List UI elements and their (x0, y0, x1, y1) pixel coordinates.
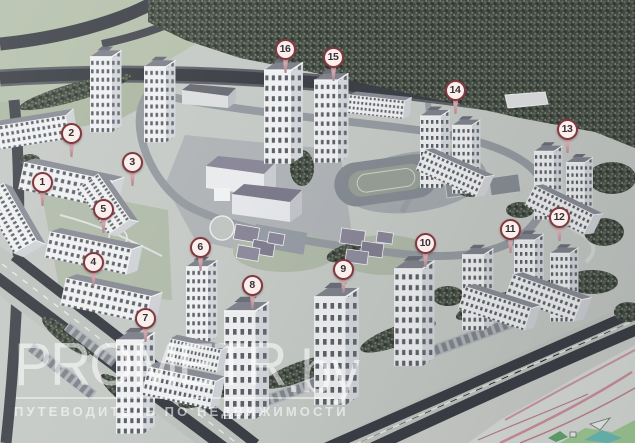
pin-number: 13 (557, 119, 578, 140)
pin-number: 3 (122, 152, 143, 173)
pin-number: 7 (135, 308, 156, 329)
pin-number: 8 (242, 275, 263, 296)
pin-number: 9 (333, 259, 354, 280)
pin-number: 6 (190, 237, 211, 258)
pin-number: 5 (93, 199, 114, 220)
site-model-illustration (0, 0, 635, 443)
pin-number: 2 (61, 123, 82, 144)
pin-number: 10 (415, 233, 436, 254)
pin-number: 11 (500, 219, 521, 240)
pin-number: 4 (83, 252, 104, 273)
pin-number: 1 (32, 172, 53, 193)
pin-number: 16 (275, 39, 296, 60)
pin-number: 14 (445, 80, 466, 101)
model-photo: 1 2 3 4 5 6 7 8 9 10 11 12 13 14 15 16 P… (0, 0, 635, 443)
pin-number: 12 (549, 207, 570, 228)
pin-number: 15 (323, 47, 344, 68)
